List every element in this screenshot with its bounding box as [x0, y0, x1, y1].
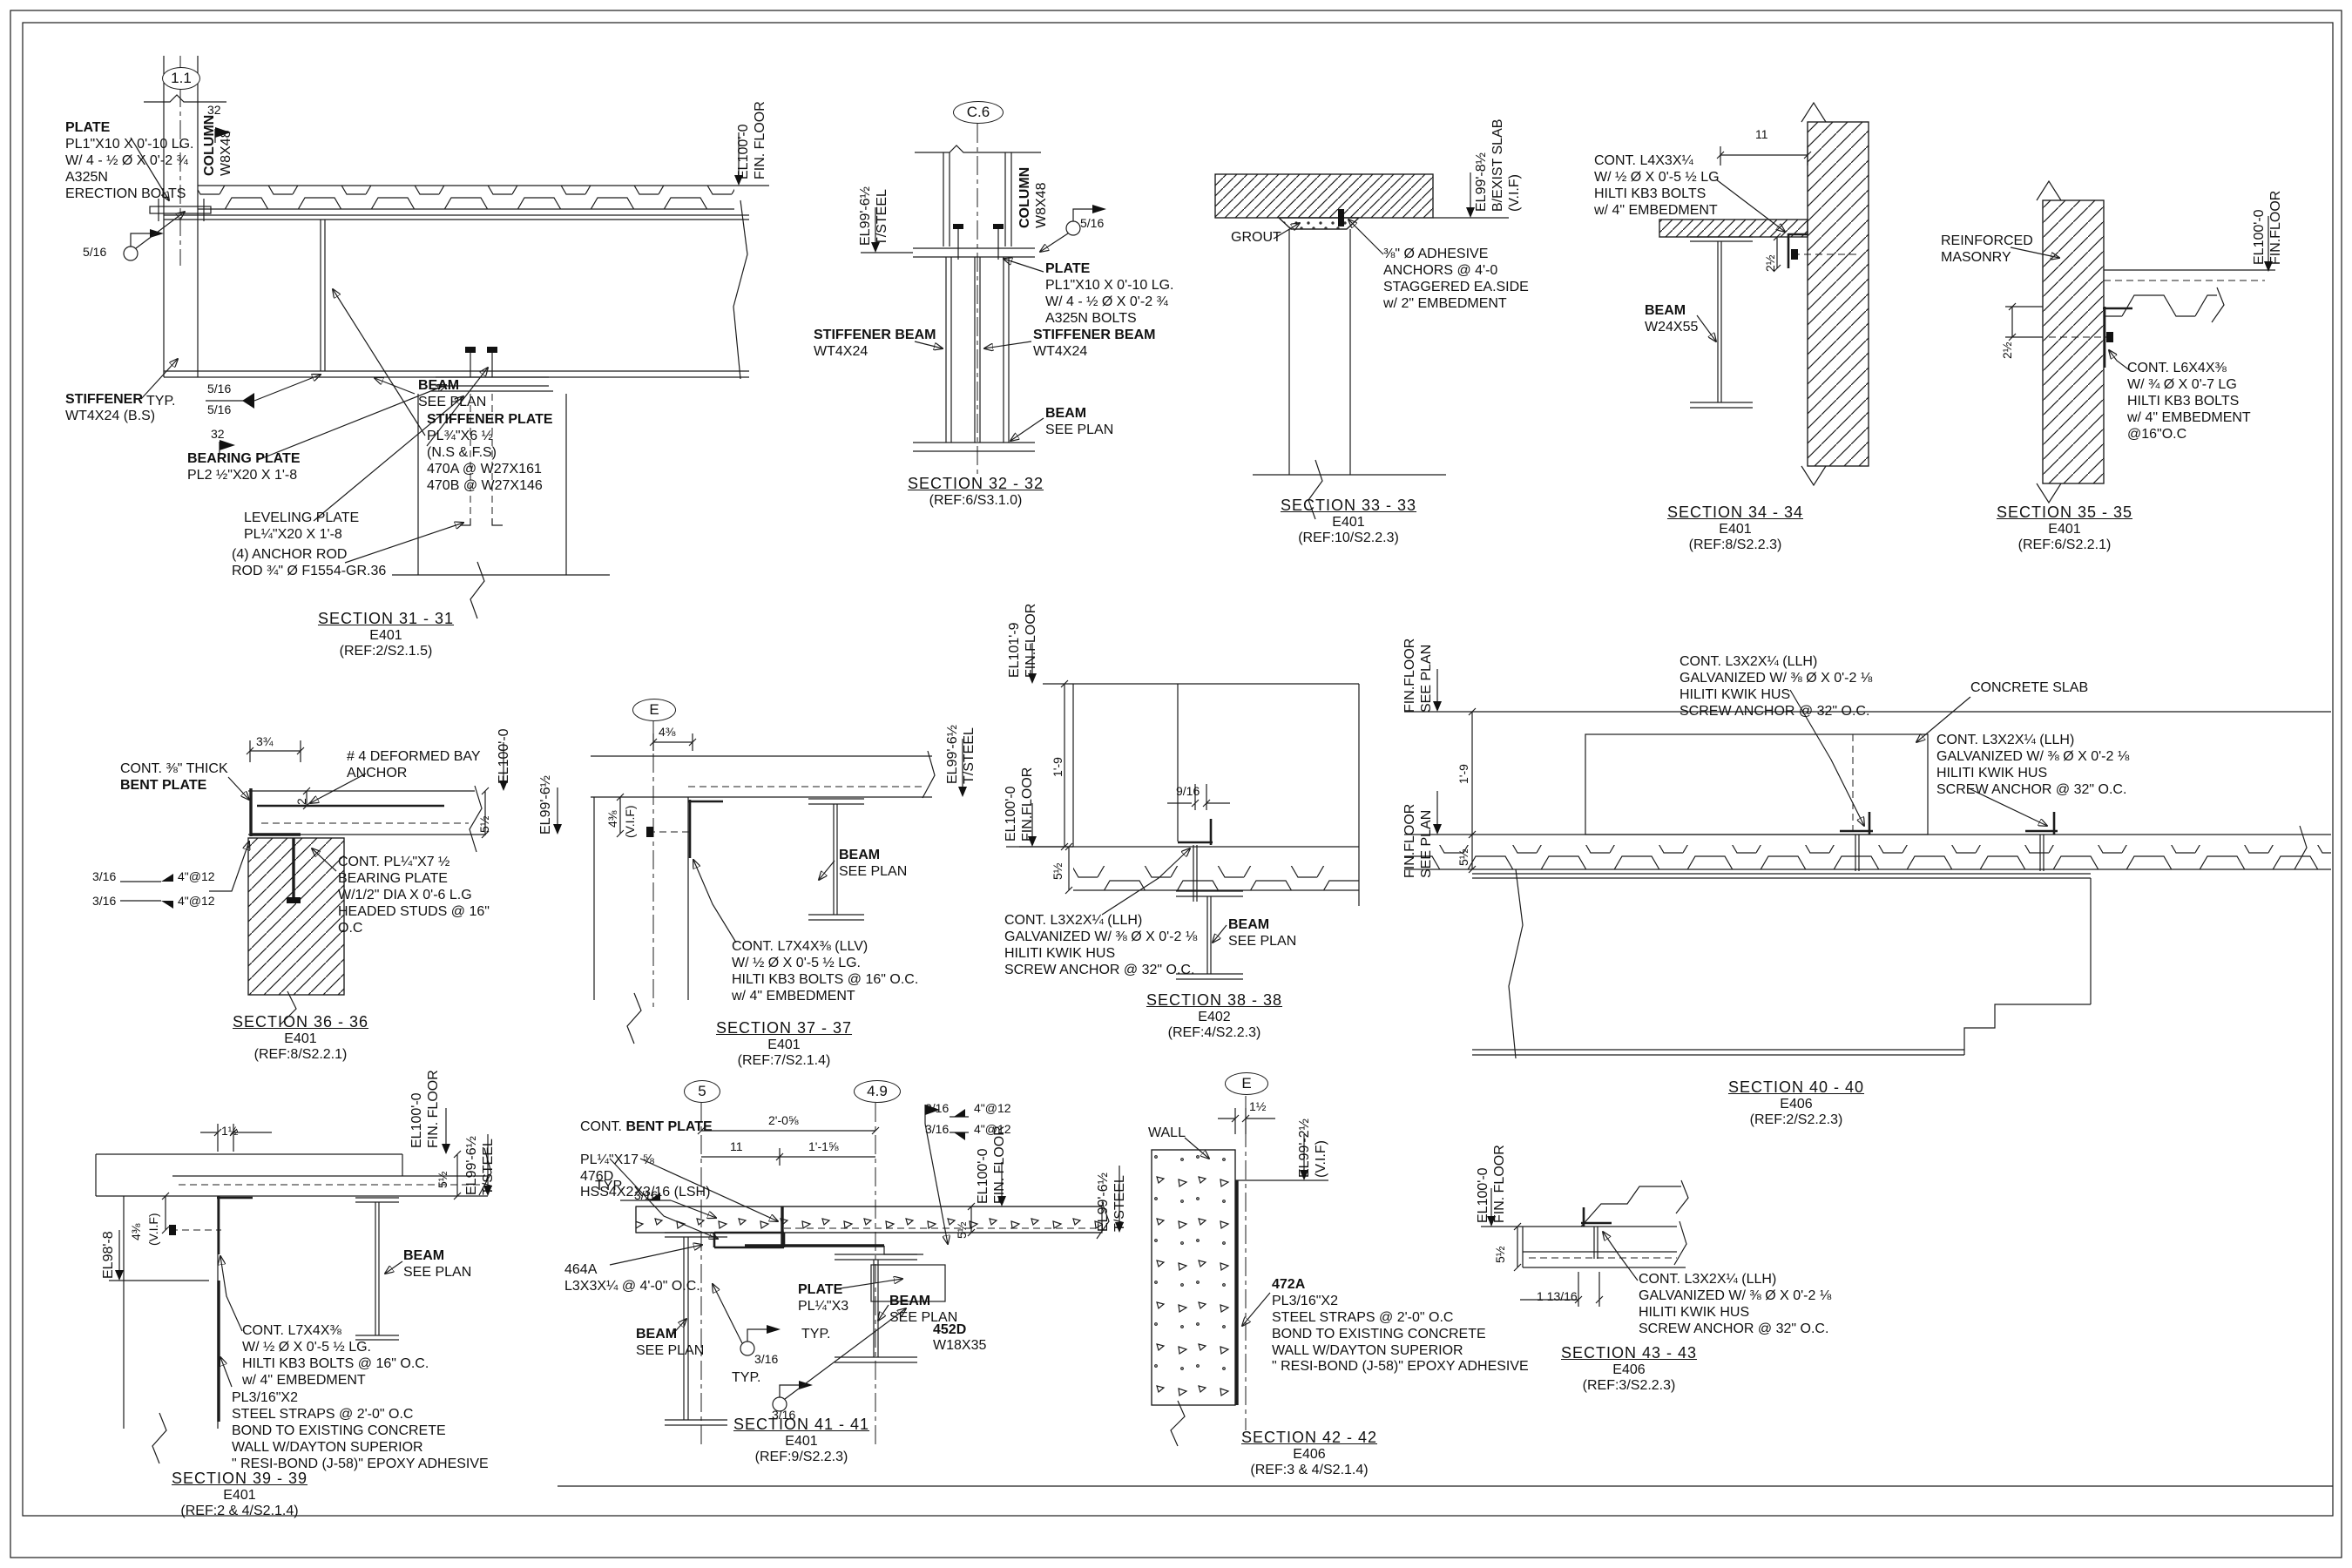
s39-title: SECTION 39 - 39 E401 (REF:2 & 4/S2.1.4)	[172, 1470, 308, 1519]
s40-dim-5-5: 5½	[1456, 849, 1471, 866]
s36-bent-plate-callout: CONT. ⅜" THICKBENT PLATE	[120, 761, 228, 794]
s40-fin-floor-lower: FIN.FLOOR SEE PLAN	[1402, 804, 1436, 878]
s41-dim-1-1: 1'-1⅝	[808, 1139, 839, 1154]
s41-typ-1: TYP.	[595, 1179, 625, 1195]
s39-angle-callout: CONT. L7X4X⅜ W/ ½ Ø X 0'-5 ½ LG. HILTI K…	[242, 1323, 429, 1389]
s42-wall-label: WALL	[1148, 1125, 1186, 1142]
s37-dim-4-38-left: 4⅜	[605, 811, 620, 828]
s32-column-label: COLUMNW8X48	[1017, 167, 1051, 228]
s39-el988-label: EL98'-8	[101, 1231, 118, 1279]
s40-angle-callout-left: CONT. L3X2X¼ (LLH) GALVANIZED W/ ⅜ Ø X 0…	[1680, 654, 1872, 720]
s40-concrete-slab-label: CONCRETE SLAB	[1970, 680, 2088, 697]
s39-el996-label: EL99'-6½ T/STEEL	[464, 1136, 497, 1195]
s41-dim-2-0: 2'-0⅝	[768, 1113, 799, 1128]
s31-dim-32-bot: 32	[211, 427, 225, 442]
s41-title: SECTION 41 - 41 E401 (REF:9/S2.2.3)	[733, 1416, 869, 1465]
s41-w18x35-label: W18X35	[933, 1338, 986, 1355]
s40-title: SECTION 40 - 40 E406 (REF:2/S2.2.3)	[1728, 1078, 1864, 1128]
s38-dim-9-16: 9/16	[1176, 784, 1200, 799]
s42-title: SECTION 42 - 42 E406 (REF:3 & 4/S2.1.4)	[1241, 1429, 1377, 1478]
s39-vif-label: (V.I.F)	[146, 1213, 161, 1246]
s34-beam-callout: BEAMW24X55	[1645, 303, 1698, 336]
s36-weld-spacing-b: 4"@12	[178, 894, 215, 909]
s38-el1000-label: EL100'-0 FIN.FLOOR	[1004, 767, 1037, 841]
s39-dim-1-5: 1½	[221, 1124, 238, 1139]
s36-weld-3-16-a: 3/16	[92, 869, 116, 884]
s31-beam-callout: BEAMSEE PLAN	[418, 378, 486, 411]
s36-bearing-callout: CONT. PL¼"X7 ½ BEARING PLATE W/1/2" DIA …	[338, 855, 490, 936]
s35-drawing	[2005, 181, 2275, 503]
s35-masonry-label: REINFORCED MASONRY	[1941, 233, 2033, 267]
s33-elevation-label: EL99'-8½ B/EXIST SLAB (V.I.F)	[1474, 119, 1524, 212]
s36-dim-3-34: 3¾	[256, 734, 273, 749]
s39-el100-label: EL100'-0 FIN. FLOOR	[409, 1070, 443, 1148]
s32-title: SECTION 32 - 32 (REF:6/S3.1.0)	[908, 475, 1044, 509]
s31-leveling-plate-callout: LEVELING PLATE PL¼"X20 X 1'-8	[244, 510, 359, 544]
grid-bubble-4-9: 4.9	[854, 1080, 901, 1103]
s38-dim-5-5: 5½	[1051, 863, 1065, 880]
s41-el996-label: EL99'-6½ T/STEEL	[1096, 1173, 1129, 1232]
s41-beam-left-callout: BEAMSEE PLAN	[636, 1327, 704, 1360]
s42-elevation-label: EL99'-2½ (V.I.F)	[1297, 1119, 1330, 1178]
grid-bubble-5: 5	[684, 1080, 720, 1103]
s31-column-label: COLUMNW8X48	[202, 115, 235, 176]
s40-dim-1-9: 1'-9	[1456, 764, 1471, 784]
s41-el100-label: EL100'-0 FIN. FLOOR	[976, 1125, 1009, 1204]
s31-stiffener-callout: STIFFENERWT4X24 (B.S)	[65, 392, 155, 425]
s38-title: SECTION 38 - 38 E402 (REF:4/S2.2.3)	[1146, 991, 1282, 1041]
s42-dim-1-5: 1½	[1249, 1099, 1266, 1114]
s41-weld-3-16-c: 3/16	[634, 1188, 658, 1203]
s43-title: SECTION 43 - 43 E406 (REF:3/S2.2.3)	[1561, 1344, 1697, 1394]
s39-dim-4-38: 4⅜	[129, 1224, 144, 1240]
s43-angle-callout: CONT. L3X2X¼ (LLH) GALVANIZED W/ ⅜ Ø X 0…	[1639, 1272, 1831, 1338]
s35-elevation-label: EL100'-0 FIN.FLOOR	[2252, 191, 2285, 265]
s34-title: SECTION 34 - 34 E401 (REF:8/S2.2.3)	[1667, 504, 1803, 553]
s43-elevation-label: EL100'-0 FIN. FLOOR	[1476, 1145, 1509, 1223]
s37-elevation-label: EL99'-6½ T/STEEL	[945, 725, 978, 784]
s34-dim-11: 11	[1755, 127, 1768, 142]
s38-el1019-label: EL101'-9 FIN.FLOOR	[1007, 604, 1040, 678]
s36-weld-3-16-b: 3/16	[92, 894, 116, 909]
s36-title: SECTION 36 - 36 E401 (REF:8/S2.2.1)	[233, 1013, 368, 1063]
s36-weld-spacing-a: 4"@12	[178, 869, 215, 884]
s31-weld-5-16-top: 5/16	[207, 382, 231, 396]
s31-plate-callout: PLATEPL1"X10 X 0'-10 LG. W/ 4 - ½ Ø X 0'…	[65, 120, 194, 202]
s33-anchors-callout: ⅜" Ø ADHESIVE ANCHORS @ 4'-0 STAGGERED E…	[1383, 247, 1529, 313]
s31-typ-label: TYP.	[146, 394, 176, 410]
s39-dim-5-5: 5½	[436, 1172, 450, 1188]
s31-title: SECTION 31 - 31 E401 (REF:2/S2.1.5)	[318, 610, 454, 659]
s40-drawing	[1404, 669, 2331, 1058]
s37-dim-4-38-top: 4⅜	[659, 725, 675, 740]
grid-bubble-1-1: 1.1	[162, 67, 200, 90]
s31-weld-5-16: 5/16	[83, 245, 106, 260]
s31-stiffener-plate-callout: STIFFENER PLATEPL¾"X6 ½ (N.S & F.S) 470A…	[427, 412, 553, 494]
s31-dim-32-top: 32	[207, 103, 221, 118]
s33-drawing	[1215, 172, 1509, 519]
s31-elevation-label: EL100'-0 FIN. FLOOR	[736, 101, 769, 179]
s38-angle-callout: CONT. L3X2X¼ (LLH) GALVANIZED W/ ⅜ Ø X 0…	[1004, 913, 1197, 979]
s35-title: SECTION 35 - 35 E401 (REF:6/S2.2.1)	[1997, 504, 2132, 553]
s36-dim-2: 2	[294, 798, 309, 805]
s31-anchor-rod-callout: (4) ANCHOR ROD ROD ¾" Ø F1554-GR.36	[232, 547, 386, 580]
s41-464a-callout: 464A L3X3X¼ @ 4'-0" O.C.	[564, 1262, 700, 1295]
s38-dim-1-9: 1'-9	[1051, 757, 1065, 777]
s31-bearing-plate-callout: BEARING PLATEPL2 ½"X20 X 1'-8	[187, 451, 300, 484]
s33-title: SECTION 33 - 33 E401 (REF:10/S2.2.3)	[1281, 497, 1416, 546]
s32-elevation-label: EL99'-6½ T/STEEL	[858, 186, 891, 246]
s37-title: SECTION 37 - 37 E401 (REF:7/S2.1.4)	[716, 1019, 852, 1069]
s32-stiffener-beam-right: STIFFENER BEAMWT4X24	[1033, 328, 1155, 361]
s41-plate-callout: PLATEPL¼"X3	[798, 1282, 848, 1315]
s43-dim-1-13-16: 1 13/16	[1537, 1289, 1578, 1304]
s39-strap-callout: PL3/16"X2 STEEL STRAPS @ 2'-0" O.C BOND …	[232, 1390, 489, 1472]
s41-typ-3: TYP.	[732, 1370, 761, 1387]
s37-angle-callout: CONT. L7X4X⅜ (LLV) W/ ½ Ø X 0'-5 ½ LG. H…	[732, 939, 918, 1005]
drawing-sheet: 1.1 C.6 E 5 4.9 E PLATEPL1"X10 X 0'-10 L…	[0, 0, 2352, 1568]
s41-452d-label: 452D	[933, 1322, 966, 1339]
s41-typ-2: TYP.	[801, 1327, 831, 1343]
s32-beam-callout: BEAMSEE PLAN	[1045, 406, 1113, 439]
s36-dim-5-5: 5½	[477, 816, 492, 833]
s39-beam-callout: BEAMSEE PLAN	[403, 1248, 471, 1281]
grid-bubble-c6: C.6	[953, 101, 1004, 124]
s34-angle-callout: CONT. L4X3X¼ W/ ½ Ø X 0'-5 ½ LG HILTI KB…	[1594, 153, 1720, 220]
s42-472a-callout: 472APL3/16"X2 STEEL STRAPS @ 2'-0" O.C B…	[1272, 1277, 1529, 1375]
s33-grout-label: GROUT	[1231, 230, 1281, 247]
s36-el100-label: EL100'-0	[497, 728, 513, 784]
s32-weld-5-16: 5/16	[1080, 216, 1104, 231]
s41-dim-11: 11	[730, 1139, 743, 1154]
s37-vif-label: (V.I.F)	[623, 805, 638, 838]
s37-beam-callout: BEAMSEE PLAN	[839, 848, 907, 881]
s43-dim-5-5: 5½	[1493, 1247, 1508, 1263]
s40-angle-callout-right: CONT. L3X2X¼ (LLH) GALVANIZED W/ ⅜ Ø X 0…	[1936, 733, 2129, 799]
s41-weld-3-16-b: 3/16	[925, 1122, 949, 1137]
grid-bubble-e-s42: E	[1225, 1072, 1268, 1095]
s36-el996-label: EL99'-6½	[538, 775, 555, 835]
s34-dim-2-5: 2½	[1763, 255, 1778, 272]
s36-bay-anchor-callout: # 4 DEFORMED BAY ANCHOR	[347, 749, 481, 782]
s38-beam-callout: BEAMSEE PLAN	[1228, 917, 1296, 950]
s41-weld-spacing-a: 4"@12	[974, 1101, 1011, 1116]
s40-fin-floor-upper: FIN.FLOOR SEE PLAN	[1402, 639, 1436, 713]
grid-bubble-e-s37: E	[632, 699, 676, 721]
s41-weld-3-16-d: 3/16	[754, 1352, 778, 1367]
s35-dim-2-5: 2½	[2000, 342, 2015, 359]
s41-dim-5-5: 5½	[955, 1222, 970, 1239]
s31-weld-5-16-bot: 5/16	[207, 402, 231, 417]
s41-weld-3-16-a: 3/16	[925, 1101, 949, 1116]
s32-stiffener-beam-left: STIFFENER BEAMWT4X24	[814, 328, 936, 361]
s32-plate-callout: PLATEPL1"X10 X 0'-10 LG. W/ 4 - ½ Ø X 0'…	[1045, 261, 1174, 328]
s35-angle-callout: CONT. L6X4X⅜ W/ ¾ Ø X 0'-7 LG HILTI KB3 …	[2127, 361, 2251, 443]
